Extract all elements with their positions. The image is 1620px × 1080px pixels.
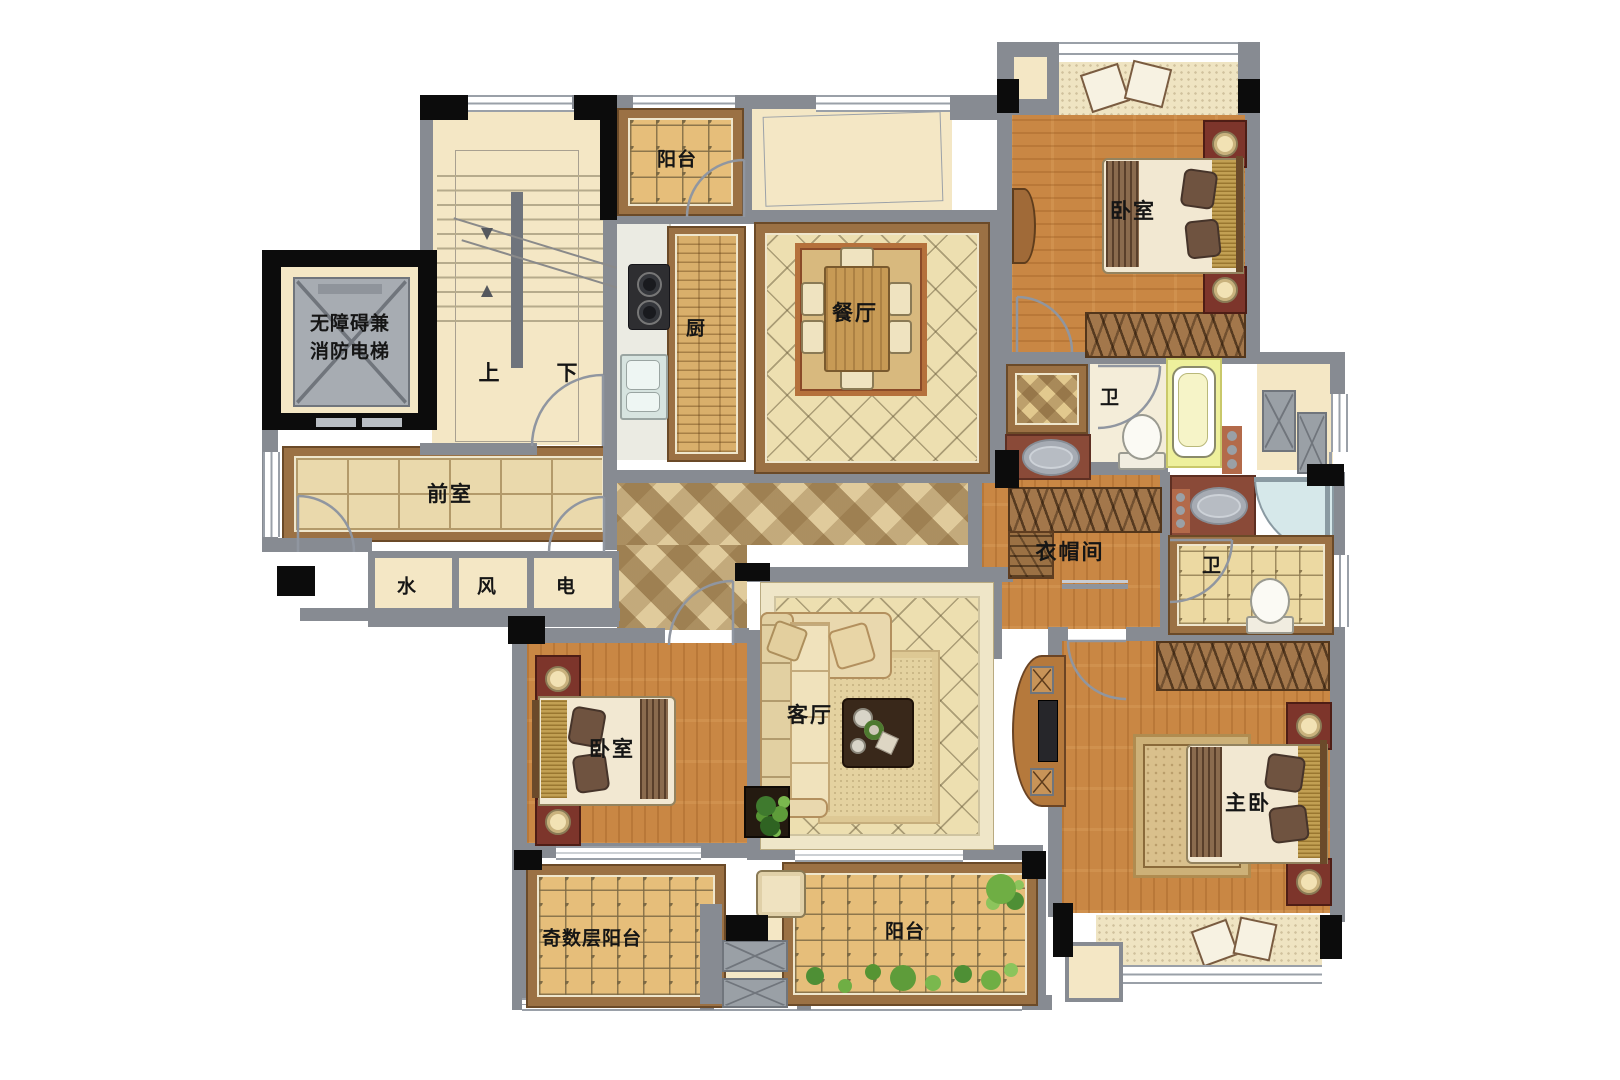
stove-burner-icon [637, 300, 662, 325]
pillow [1268, 804, 1310, 844]
room-label-bath-upper: 卫 [1100, 383, 1120, 410]
room-label-living: 客厅 [787, 699, 833, 729]
hallway-floor-lower [617, 545, 747, 630]
stairs-up-label: 上 [479, 357, 502, 387]
wall [1330, 352, 1345, 394]
shelf-dot-icon [1227, 459, 1237, 469]
column [1022, 851, 1046, 879]
toilet-bowl [1122, 414, 1162, 460]
headboard [1320, 740, 1327, 864]
wall [603, 443, 617, 455]
lamp-icon [1212, 131, 1238, 157]
wall [420, 443, 537, 455]
kitchen-sink-basin [626, 360, 660, 390]
stairs-down-label: 下 [557, 357, 580, 387]
washbasin [1022, 439, 1080, 476]
window [468, 95, 574, 112]
terrace-outline [763, 111, 944, 207]
bed-blanket-fold [1190, 747, 1222, 857]
shelf-dot-icon [1176, 506, 1185, 515]
alcove-floor [1015, 373, 1079, 425]
sliding-door [1062, 584, 1128, 589]
column [508, 616, 545, 644]
wall [700, 904, 722, 1004]
window [795, 848, 963, 862]
column [1320, 915, 1342, 959]
elevator-door-mark [362, 418, 402, 427]
column [1238, 79, 1260, 113]
dining-chair [888, 282, 912, 316]
headboard [1236, 156, 1243, 272]
alcove-trim [1006, 364, 1088, 434]
speaker [1030, 768, 1054, 796]
teacup-icon [850, 738, 866, 754]
stove-burner-icon [637, 272, 662, 297]
toilet-bowl [1250, 578, 1290, 624]
wall [262, 538, 372, 552]
wall [512, 858, 526, 1010]
window [1331, 394, 1348, 452]
hallway-floor [617, 483, 968, 545]
column [735, 563, 770, 581]
column [600, 98, 617, 220]
stair-divider [511, 192, 523, 368]
wardrobe [1156, 641, 1330, 691]
shelf-dot-icon [1227, 431, 1237, 441]
shaft-power-label: 电 [556, 572, 576, 599]
wall [968, 462, 982, 567]
window [1096, 965, 1322, 984]
column [514, 850, 542, 870]
column [420, 95, 468, 120]
wall [747, 567, 1013, 582]
room-label-balcony-bottom: 阳台 [885, 917, 925, 944]
washer-cabinet [756, 870, 806, 918]
pillow [1184, 218, 1222, 259]
column [726, 915, 768, 941]
column [277, 566, 315, 596]
kitchen-island-top [675, 234, 738, 454]
column [997, 79, 1019, 113]
shaft-air-label: 风 [477, 572, 497, 599]
window [263, 452, 280, 537]
dining-chair [888, 320, 912, 354]
stair-arrow-icon [481, 228, 493, 240]
ac-unit [1262, 390, 1296, 452]
shaft-water-label: 水 [397, 572, 417, 599]
shelf-dot-icon [1176, 519, 1185, 528]
room-label-kitchen: 厨 [686, 314, 706, 341]
speaker [1030, 666, 1054, 694]
elevator-label-line1: 无障碍兼 [310, 309, 390, 336]
column [1307, 464, 1344, 486]
room-label-bedroom-left: 卧室 [589, 733, 635, 763]
wall [420, 109, 433, 255]
stair-arrow-icon [481, 285, 493, 297]
vent-box [722, 940, 788, 972]
elevator-counterweight [318, 284, 382, 294]
plant [986, 874, 1016, 904]
shelf-dot-icon [1227, 445, 1237, 455]
wall [1048, 627, 1068, 641]
window [816, 95, 952, 112]
shelf-dot-icon [1176, 493, 1185, 502]
window [556, 846, 701, 860]
room-label-balcony-odd: 奇数层阳台 [542, 924, 642, 951]
lamp-icon [1296, 869, 1322, 895]
bathtub-basin [1178, 373, 1208, 447]
lamp-icon [545, 666, 571, 692]
room-label-bedroom-tr: 卧室 [1110, 195, 1156, 225]
plant [890, 965, 916, 991]
towel-shelf [1222, 426, 1242, 474]
kitchen-sink-basin [626, 392, 660, 412]
bed-blanket-fold [640, 699, 668, 799]
room-label-bath-lower: 卫 [1202, 551, 1222, 578]
lamp-icon [1212, 277, 1238, 303]
room-label-closet: 衣帽间 [1036, 536, 1105, 566]
headboard [532, 700, 539, 798]
lamp-icon [1296, 713, 1322, 739]
room-label-dining: 餐厅 [832, 297, 878, 327]
bay-cushion [1232, 916, 1277, 961]
elevator-label-line2: 消防电梯 [310, 337, 390, 364]
pillow [1180, 168, 1219, 210]
towel-shelf [1172, 489, 1190, 533]
room-label-master: 主卧 [1225, 787, 1271, 817]
room-label-vestibule: 前室 [427, 478, 473, 508]
bed-cover [541, 700, 567, 798]
lamp-icon [545, 809, 571, 835]
floor-plan: 阳台 厨 餐厅 卧室 无障碍兼 消防电梯 上 下 前室 水 风 电 卫 衣帽间 … [0, 0, 1620, 1080]
wall [1330, 627, 1345, 922]
wall [300, 608, 620, 621]
elevator-door-mark [316, 418, 356, 427]
wall [733, 628, 749, 643]
washbasin [1190, 487, 1248, 525]
lower-ledge [1065, 942, 1123, 1002]
column [1053, 903, 1073, 957]
vent-box [722, 978, 788, 1008]
wardrobe [1008, 487, 1162, 533]
plant [756, 796, 776, 816]
wall [512, 643, 527, 858]
wall [740, 95, 818, 109]
kitchen-island-trim [667, 226, 746, 462]
column [995, 450, 1019, 488]
room-label-balcony-top: 阳台 [657, 145, 697, 172]
dining-chair [801, 282, 825, 316]
bath-lower-floor [1177, 544, 1325, 626]
tv [1038, 700, 1058, 762]
dining-chair [801, 320, 825, 354]
sliding-door [1062, 580, 1128, 583]
wardrobe [1085, 312, 1246, 358]
kitchen-counter [617, 224, 671, 460]
console-table [1012, 188, 1036, 264]
